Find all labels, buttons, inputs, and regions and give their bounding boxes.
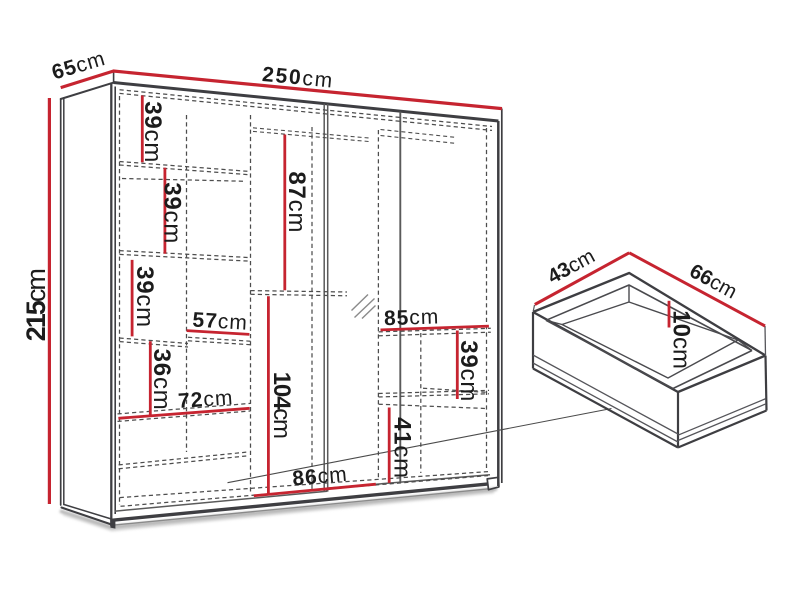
svg-text:39cm: 39cm bbox=[456, 340, 483, 402]
svg-text:85cm: 85cm bbox=[384, 305, 440, 330]
svg-text:43cm: 43cm bbox=[543, 244, 598, 288]
svg-text:10cm: 10cm bbox=[668, 310, 695, 369]
svg-text:86cm: 86cm bbox=[291, 462, 348, 490]
svg-text:72cm: 72cm bbox=[177, 386, 234, 413]
svg-text:39cm: 39cm bbox=[139, 101, 166, 163]
svg-text:57cm: 57cm bbox=[192, 308, 249, 334]
svg-text:104cm: 104cm bbox=[269, 372, 296, 438]
svg-text:36cm: 36cm bbox=[149, 349, 176, 411]
svg-text:39cm: 39cm bbox=[132, 266, 159, 328]
svg-text:39cm: 39cm bbox=[159, 182, 186, 244]
svg-text:65cm: 65cm bbox=[49, 46, 108, 83]
svg-text:87cm: 87cm bbox=[284, 171, 311, 233]
svg-text:66cm: 66cm bbox=[686, 259, 741, 303]
svg-text:215cm: 215cm bbox=[21, 270, 51, 342]
svg-text:41cm: 41cm bbox=[389, 417, 416, 479]
